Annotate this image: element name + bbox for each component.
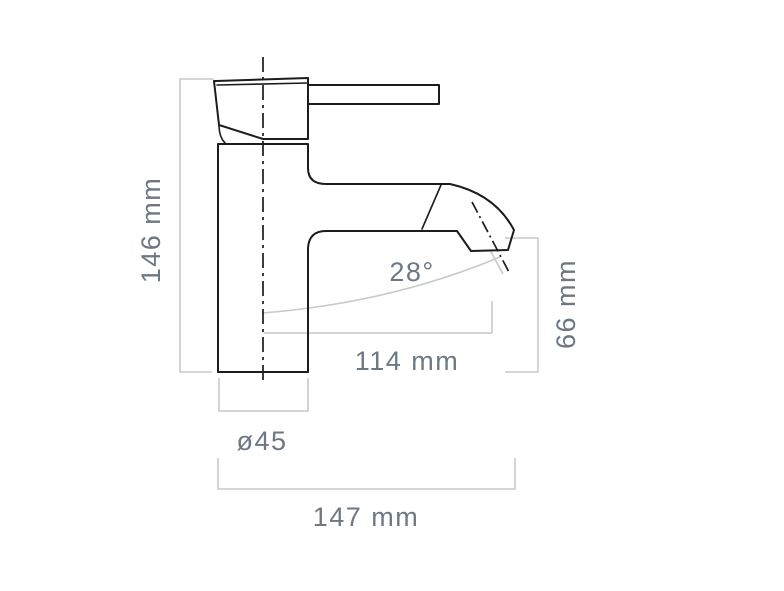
outlet-height-label: 66 mm	[551, 259, 581, 349]
faucet-dimension-drawing: 146 mm 28° 114 mm 66 mm ø45 147 mm	[0, 0, 784, 591]
overall-depth-label: 147 mm	[313, 502, 420, 532]
spout-axis-centerline	[472, 202, 510, 274]
faucet-outline-group	[214, 78, 514, 372]
spout-reach-label: 114 mm	[355, 346, 460, 376]
overall-depth-bracket	[218, 458, 515, 489]
spout-angle-label: 28°	[389, 257, 434, 287]
spout-angle-arc-end-tick	[490, 250, 503, 274]
technical-drawing-canvas: 146 mm 28° 114 mm 66 mm ø45 147 mm	[0, 0, 784, 591]
total-height-label: 146 mm	[136, 177, 166, 284]
dimension-lines-group	[180, 79, 538, 489]
centerlines-group	[263, 57, 510, 383]
spout-joint-line	[422, 185, 441, 229]
spout-angle-arc	[262, 257, 500, 313]
base-diameter-label: ø45	[236, 426, 287, 456]
base-diameter-bracket	[219, 378, 308, 411]
outlet-height-bracket	[505, 238, 538, 372]
faucet-lever-handle	[308, 85, 439, 104]
faucet-handle-cap	[214, 78, 308, 139]
handle-cap-top-rim-line	[217, 83, 308, 85]
height-dimension-bracket	[180, 79, 214, 372]
handle-cap-corner-detail	[219, 125, 225, 143]
spout-reach-dimension-line	[264, 301, 492, 333]
